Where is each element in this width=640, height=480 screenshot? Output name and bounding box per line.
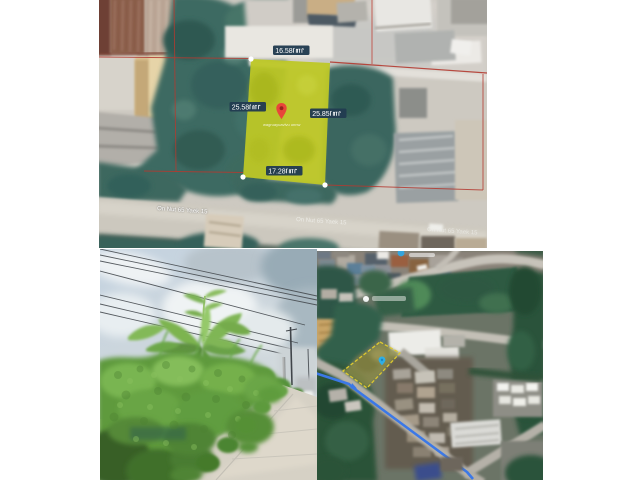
svg-text:wagruayuavlvu unnw: wagruayuavlvu unnw <box>263 122 300 127</box>
svg-text:16.58: 16.58 <box>275 48 293 55</box>
svg-text:17.28: 17.28 <box>268 168 286 175</box>
svg-text:25.58: 25.58 <box>232 104 250 111</box>
svg-text:25.85: 25.85 <box>312 111 330 118</box>
